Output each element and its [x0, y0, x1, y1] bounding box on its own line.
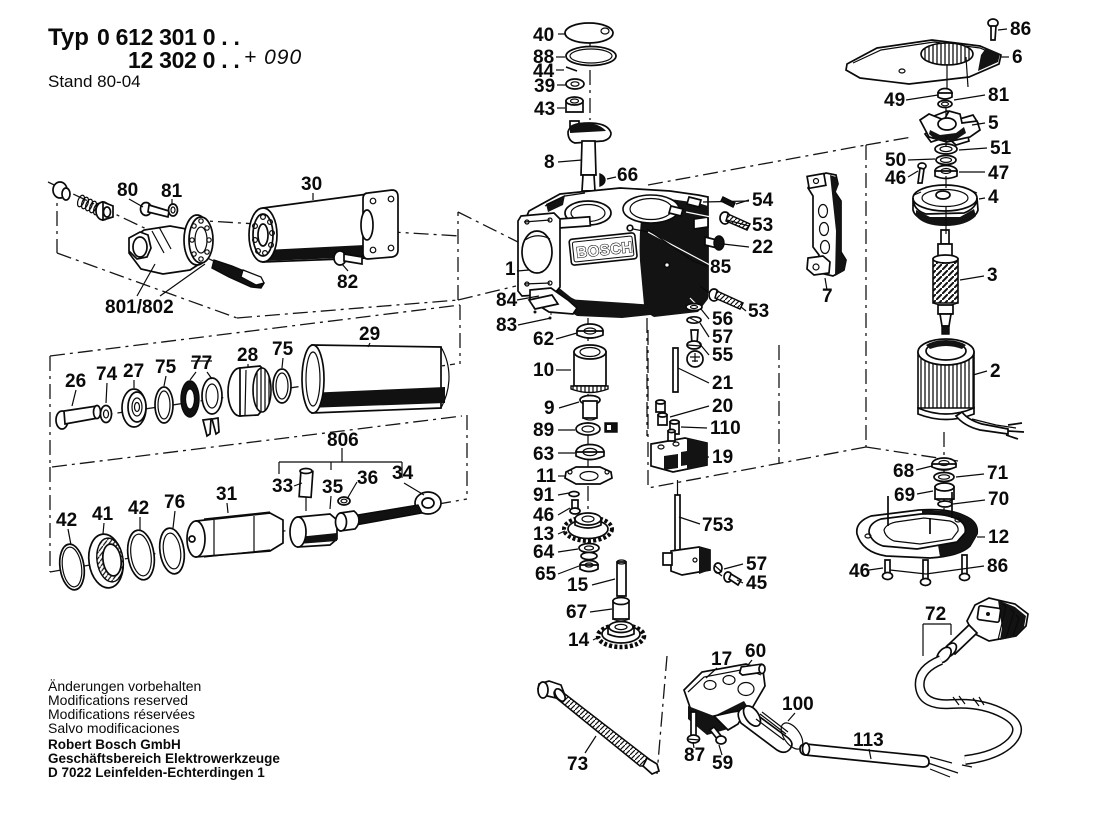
svg-text:80: 80 — [117, 180, 138, 201]
svg-text:91: 91 — [533, 485, 555, 506]
svg-text:35: 35 — [322, 477, 344, 498]
svg-text:28: 28 — [237, 345, 258, 366]
svg-text:67: 67 — [566, 602, 587, 623]
svg-text:82: 82 — [337, 272, 358, 293]
svg-text:17: 17 — [711, 649, 732, 670]
svg-text:100: 100 — [782, 694, 814, 715]
svg-text:72: 72 — [925, 604, 946, 625]
svg-text:60: 60 — [745, 641, 766, 662]
svg-text:10: 10 — [533, 360, 554, 381]
svg-text:65: 65 — [535, 564, 557, 585]
svg-text:41: 41 — [92, 504, 114, 525]
svg-text:Stand 80-04: Stand 80-04 — [48, 72, 141, 91]
svg-text:110: 110 — [710, 418, 741, 439]
svg-text:75: 75 — [272, 339, 294, 360]
svg-text:71: 71 — [987, 463, 1009, 484]
svg-text:3: 3 — [987, 265, 998, 286]
svg-text:12: 12 — [988, 527, 1009, 548]
svg-text:70: 70 — [988, 489, 1009, 510]
svg-text:68: 68 — [893, 461, 914, 482]
svg-text:42: 42 — [56, 510, 77, 531]
svg-text:Salvo modificaciones: Salvo modificaciones — [48, 720, 180, 736]
svg-text:53: 53 — [752, 215, 773, 236]
svg-text:74: 74 — [96, 364, 118, 385]
svg-text:36: 36 — [357, 468, 378, 489]
svg-text:Robert Bosch GmbH: Robert Bosch GmbH — [48, 737, 181, 752]
svg-text:66: 66 — [617, 165, 638, 186]
svg-text:20: 20 — [712, 396, 733, 417]
svg-text:46: 46 — [885, 168, 906, 189]
svg-text:22: 22 — [752, 237, 773, 258]
svg-text:81: 81 — [988, 85, 1010, 106]
svg-text:801/802: 801/802 — [105, 297, 174, 318]
svg-text:1: 1 — [505, 259, 516, 280]
svg-text:Typ: Typ — [48, 24, 89, 51]
svg-text:4: 4 — [988, 187, 999, 208]
svg-text:30: 30 — [301, 174, 322, 195]
svg-text:53: 53 — [748, 301, 769, 322]
svg-text:40: 40 — [533, 25, 554, 46]
svg-text:47: 47 — [988, 163, 1009, 184]
svg-text:34: 34 — [392, 463, 414, 484]
svg-text:77: 77 — [191, 353, 212, 374]
svg-text:62: 62 — [533, 329, 554, 350]
svg-text:113: 113 — [853, 730, 884, 751]
svg-text:5: 5 — [988, 113, 999, 134]
svg-text:49: 49 — [884, 90, 905, 111]
svg-text:2: 2 — [990, 361, 1001, 382]
svg-text:9: 9 — [544, 398, 555, 419]
svg-text:76: 76 — [164, 492, 185, 513]
svg-text:8: 8 — [544, 152, 555, 173]
svg-text:51: 51 — [990, 138, 1012, 159]
svg-text:57: 57 — [746, 554, 767, 575]
svg-text:12 302 0 . .: 12 302 0 . . — [128, 47, 240, 73]
svg-text:86: 86 — [987, 556, 1008, 577]
svg-text:81: 81 — [161, 181, 183, 202]
svg-text:19: 19 — [712, 447, 733, 468]
svg-text:46: 46 — [849, 561, 870, 582]
svg-text:26: 26 — [65, 371, 86, 392]
svg-text:15: 15 — [567, 575, 589, 596]
svg-text:64: 64 — [533, 542, 555, 563]
svg-text:43: 43 — [534, 99, 555, 120]
svg-text:75: 75 — [155, 357, 177, 378]
svg-text:63: 63 — [533, 444, 554, 465]
svg-text:33: 33 — [272, 476, 293, 497]
svg-text:14: 14 — [568, 630, 590, 651]
svg-text:27: 27 — [123, 361, 144, 382]
svg-text:D 7022 Leinfelden-Echterdingen: D 7022 Leinfelden-Echterdingen 1 — [48, 765, 265, 780]
svg-text:Geschäftsbereich Elektrowerkze: Geschäftsbereich Elektrowerkzeuge — [48, 751, 280, 766]
svg-text:84: 84 — [496, 290, 518, 311]
svg-text:73: 73 — [567, 754, 588, 775]
svg-text:54: 54 — [752, 190, 774, 211]
svg-text:29: 29 — [359, 324, 380, 345]
svg-text:83: 83 — [496, 315, 517, 336]
svg-text:31: 31 — [216, 484, 238, 505]
svg-text:21: 21 — [712, 373, 734, 394]
svg-text:87: 87 — [684, 745, 705, 766]
svg-text:89: 89 — [533, 420, 554, 441]
svg-text:59: 59 — [712, 753, 733, 774]
svg-text:806: 806 — [327, 430, 359, 451]
svg-text:46: 46 — [533, 505, 554, 526]
svg-text:11: 11 — [536, 466, 557, 487]
svg-text:753: 753 — [702, 515, 734, 536]
svg-text:+ 090: + 090 — [244, 46, 302, 69]
svg-text:6: 6 — [1012, 47, 1023, 68]
svg-text:85: 85 — [710, 257, 732, 278]
svg-text:39: 39 — [534, 76, 555, 97]
svg-text:86: 86 — [1010, 19, 1031, 40]
svg-text:42: 42 — [128, 498, 149, 519]
svg-text:45: 45 — [746, 573, 768, 594]
svg-text:69: 69 — [894, 485, 915, 506]
svg-text:55: 55 — [712, 345, 734, 366]
